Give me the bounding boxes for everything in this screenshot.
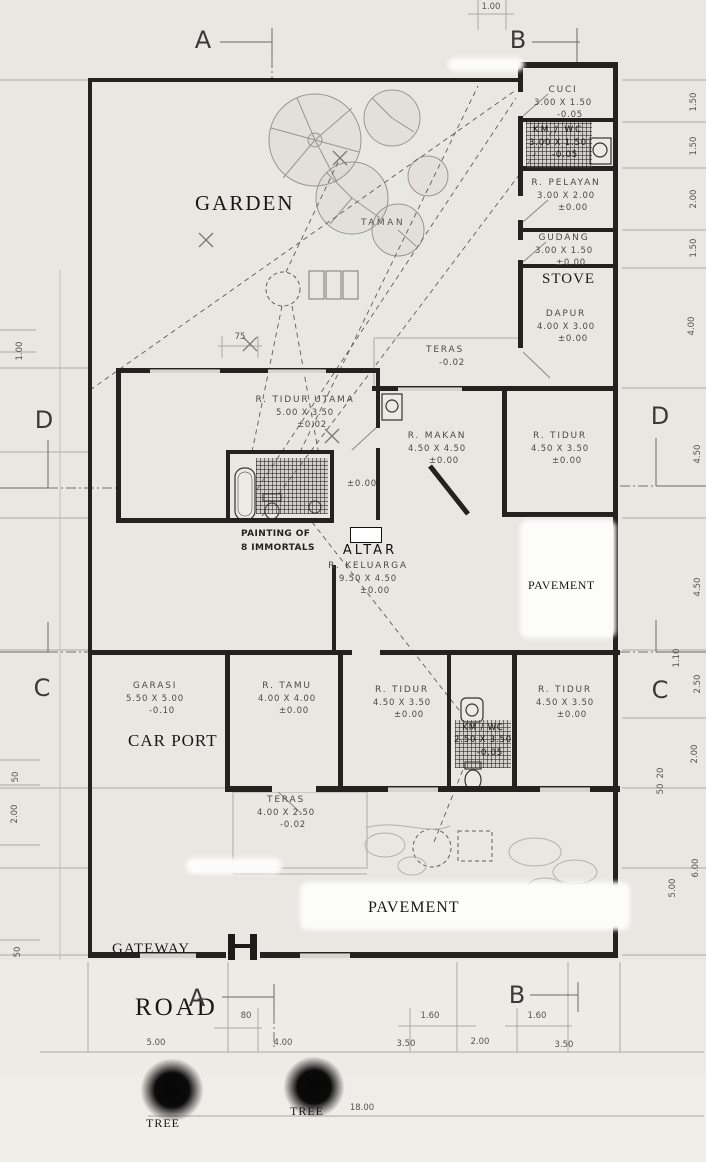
dim-right-2: 2.00 xyxy=(689,190,699,209)
grid-marker-c-right: C xyxy=(652,676,669,704)
wall xyxy=(502,512,617,517)
door-opening xyxy=(272,786,316,792)
dim-right-12: 6.00 xyxy=(691,859,701,878)
dim-left-0: 1.00 xyxy=(15,342,25,361)
grid-marker-b-top: B xyxy=(510,26,526,54)
room-label-pelayan: R. PELAYAN 3.00 X 2.00 ±0.00 xyxy=(531,177,600,215)
dim-bottom-lower-0: 5.00 xyxy=(147,1038,166,1048)
wall xyxy=(502,391,507,514)
pavement-right-label: PAVEMENT xyxy=(528,578,595,593)
wall xyxy=(338,650,343,790)
room-label-tidur-south: R. TIDUR 4.50 X 3.50 ±0.00 xyxy=(373,684,431,722)
altar-box xyxy=(350,527,382,543)
whiteout-patch xyxy=(300,882,630,930)
pavement-bottom-label: PAVEMENT xyxy=(368,899,460,917)
grid-marker-c-left: C xyxy=(34,674,51,702)
whiteout-patch xyxy=(448,58,524,71)
dim-bottom-upper-2: 1.60 xyxy=(528,1011,547,1021)
altar-label: ALTAR xyxy=(343,543,397,558)
room-label-keluarga: R. KELUARGA 9.50 X 4.50 ±0.00 xyxy=(328,560,408,598)
dim-right-5: 4.50 xyxy=(693,445,703,464)
planter-boxes xyxy=(309,271,358,299)
room-label-kmwc-top: KM / WC 3.00 X 1.50 -0.05 xyxy=(529,124,587,162)
wall xyxy=(376,368,380,428)
room-label-cuci: CUCI 3.00 X 1.50 -0.05 xyxy=(534,84,592,122)
window xyxy=(150,369,220,373)
dim-right-11: 50 xyxy=(656,784,666,795)
dim-left-3: 50 xyxy=(13,947,23,958)
dim-bottom-lower-4: 3.50 xyxy=(555,1040,574,1050)
room-label-teras-upper: TERAS -0.02 xyxy=(425,344,465,369)
tree-icon xyxy=(140,1058,204,1122)
wall xyxy=(225,650,230,790)
door-opening xyxy=(518,92,523,116)
dim-bottom-upper-1: 1.60 xyxy=(421,1011,440,1021)
dim-right-7: 1.10 xyxy=(672,649,682,668)
wall xyxy=(613,62,618,958)
wall xyxy=(518,62,618,68)
dim-right-10: 20 xyxy=(656,768,666,779)
angled-wall xyxy=(430,466,468,514)
dim-left-1: 50 xyxy=(11,772,21,783)
wall xyxy=(88,78,520,82)
whiteout-patch xyxy=(186,858,282,874)
window xyxy=(268,369,326,373)
room-label-tamu: R. TAMU 4.00 X 4.00 ±0.00 xyxy=(258,680,316,718)
dim-right-0: 1.50 xyxy=(689,93,699,112)
room-label-garasi: GARASI 5.50 X 5.00 -0.10 xyxy=(126,680,184,718)
door-opening xyxy=(518,240,523,260)
room-label-tidur-southeast: R. TIDUR 4.50 X 3.50 ±0.00 xyxy=(536,684,594,722)
basin-icon xyxy=(461,698,483,722)
dim-right-6: 4.50 xyxy=(693,578,703,597)
gateway-label: GATEWAY xyxy=(112,941,190,958)
wall xyxy=(88,78,92,956)
wall xyxy=(116,368,121,523)
door-opening xyxy=(352,650,380,655)
room-label-tidur-east: R. TIDUR 4.50 X 3.50 ±0.00 xyxy=(531,430,589,468)
dim-right-13: 5.00 xyxy=(668,879,678,898)
window xyxy=(540,787,590,792)
dim-left-2: 2.00 xyxy=(10,805,20,824)
garden-label: GARDEN xyxy=(195,191,295,216)
road-label: ROAD xyxy=(135,994,218,1022)
dim-bottom-lower-1: 4.00 xyxy=(274,1038,293,1048)
tree-left-label: TREE xyxy=(146,1116,180,1131)
sink-icon xyxy=(382,394,402,420)
taman-label: TAMAN xyxy=(361,218,405,228)
dim-bottom-lower-2: 3.50 xyxy=(397,1039,416,1049)
dim-bottom-lower-3: 2.00 xyxy=(471,1037,490,1047)
grid-marker-b-bottom: B xyxy=(509,981,525,1009)
dim-right-9: 2.00 xyxy=(690,745,700,764)
wall xyxy=(226,450,334,454)
window xyxy=(388,787,438,792)
grid-marker-a-top: A xyxy=(195,26,211,54)
stove-label: STOVE xyxy=(542,271,595,288)
gate-bar xyxy=(228,944,257,948)
room-label-tidur-utama: R. TIDUR UTAMA 5.00 X 3.50 ±0.02 xyxy=(255,394,354,432)
dim-top-0: 1.00 xyxy=(482,2,501,12)
dim-right-8: 2.50 xyxy=(693,675,703,694)
wall xyxy=(512,650,517,792)
painting-label: PAINTING OF 8 IMMORTALS xyxy=(241,528,315,556)
dim-bottom-upper-0: 80 xyxy=(241,1011,252,1021)
wall xyxy=(226,450,230,520)
room-label-gudang: GUDANG 3.00 X 1.50 ±0.00 xyxy=(535,232,593,270)
wall xyxy=(116,518,334,523)
grid-marker-d-left: D xyxy=(35,406,53,434)
room-label-kmwc-bottom: KM / WC 2.50 X 3.50 -0.05 xyxy=(454,722,512,759)
dim-site-width: 18.00 xyxy=(350,1103,374,1113)
car-port-label: CAR PORT xyxy=(128,731,218,751)
dim-wall-offset: 75 xyxy=(235,332,246,342)
tiled-floor xyxy=(256,458,328,514)
door-opening xyxy=(518,196,523,220)
room-label-dapur: DAPUR 4.00 X 3.00 ±0.00 xyxy=(537,308,595,346)
door-opening xyxy=(518,348,523,374)
tree-icon xyxy=(269,90,448,256)
window xyxy=(300,953,350,958)
wall xyxy=(447,650,451,792)
grid-marker-a-bottom: A xyxy=(189,984,205,1012)
room-label-makan: R. MAKAN 4.50 X 4.50 ±0.00 xyxy=(408,430,467,468)
window xyxy=(398,387,462,391)
floor-plan-sheet: CUCI 3.00 X 1.50 -0.05 KM / WC 3.00 X 1.… xyxy=(0,0,706,1162)
room-label-teras-lower: TERAS 4.00 X 2.50 -0.02 xyxy=(257,794,315,832)
dim-right-3: 1.50 xyxy=(689,239,699,258)
dim-right-1: 1.50 xyxy=(689,137,699,156)
tree-right-label: TREE xyxy=(290,1104,324,1119)
grid-marker-d-right: D xyxy=(651,402,669,430)
bath-level-label: ±0.00 xyxy=(333,478,377,490)
dim-right-4: 4.00 xyxy=(687,317,697,336)
